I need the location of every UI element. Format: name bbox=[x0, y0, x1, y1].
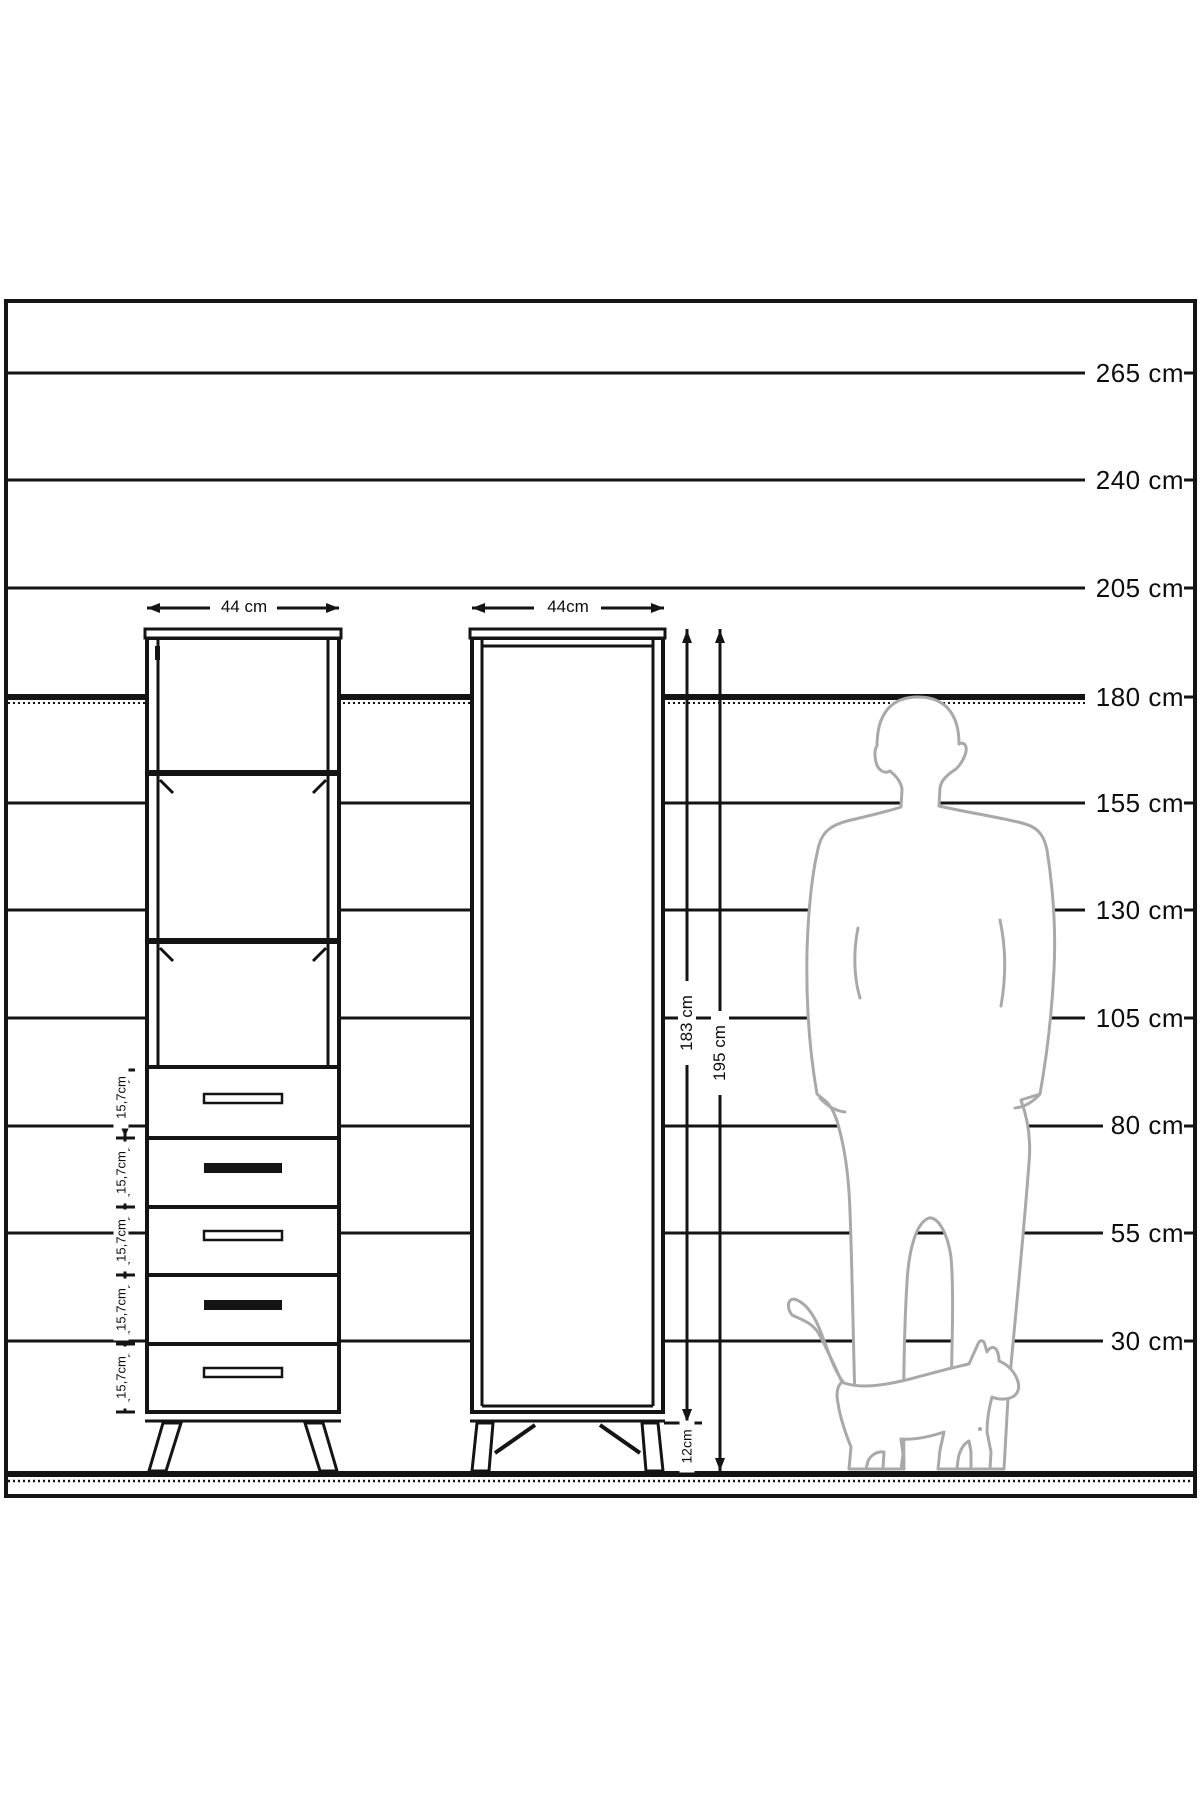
height-label-130: 130 cm bbox=[1054, 895, 1184, 925]
carcass-height-label: 183 cm bbox=[678, 981, 696, 1065]
height-label-265: 265 cm bbox=[1054, 358, 1184, 388]
ground-line bbox=[8, 1471, 1193, 1481]
height-label-155: 155 cm bbox=[1054, 788, 1184, 818]
drawer-height-label-1: 15,7cm bbox=[114, 1067, 129, 1129]
cabinet-closed-leg-braces bbox=[495, 1425, 640, 1453]
height-label-180: 180 cm bbox=[1054, 682, 1184, 712]
height-label-55: 55 cm bbox=[1054, 1218, 1184, 1248]
cabinet-open-legs bbox=[149, 1423, 337, 1471]
total-height-label: 195 cm bbox=[711, 1011, 729, 1095]
height-label-240: 240 cm bbox=[1054, 465, 1184, 495]
dimension-diagram: 265 cm 240 cm 205 cm 180 cm 155 cm 130 c… bbox=[0, 0, 1200, 1800]
scale-border-ticks bbox=[1184, 373, 1194, 1341]
drawer-height-label-2: 15,7cm bbox=[114, 1142, 129, 1204]
drawer-height-label-3: 15,7cm bbox=[114, 1210, 129, 1272]
height-label-30: 30 cm bbox=[1054, 1326, 1184, 1356]
diagram-artwork bbox=[0, 0, 1200, 1800]
height-label-105: 105 cm bbox=[1054, 1003, 1184, 1033]
leg-height-label: 12cm bbox=[680, 1421, 695, 1473]
open-cabinet-width-label: 44 cm bbox=[196, 597, 292, 617]
man-silhouette bbox=[807, 697, 1055, 1469]
height-label-205: 205 cm bbox=[1054, 573, 1184, 603]
cabinet-open-view bbox=[145, 629, 341, 1471]
height-label-80: 80 cm bbox=[1054, 1110, 1184, 1140]
drawer-height-label-5: 15,7cm bbox=[114, 1347, 129, 1409]
cabinet-closed-view bbox=[470, 629, 665, 1471]
drawer-height-label-4: 15,7cm bbox=[114, 1279, 129, 1341]
closed-cabinet-width-label: 44cm bbox=[520, 597, 616, 617]
